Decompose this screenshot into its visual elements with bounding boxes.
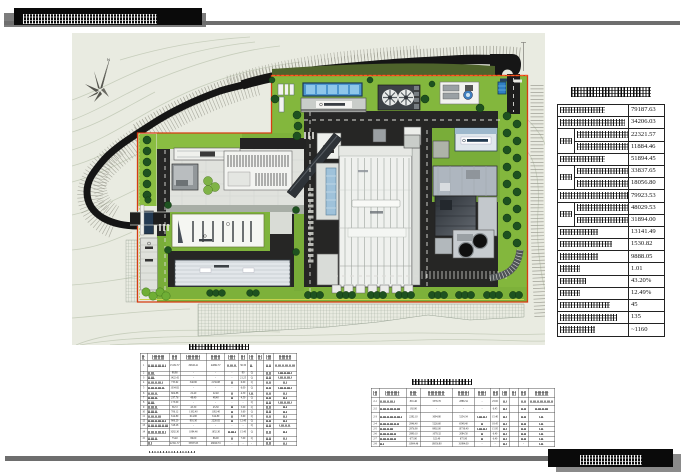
svg-text:N: N	[107, 57, 110, 62]
